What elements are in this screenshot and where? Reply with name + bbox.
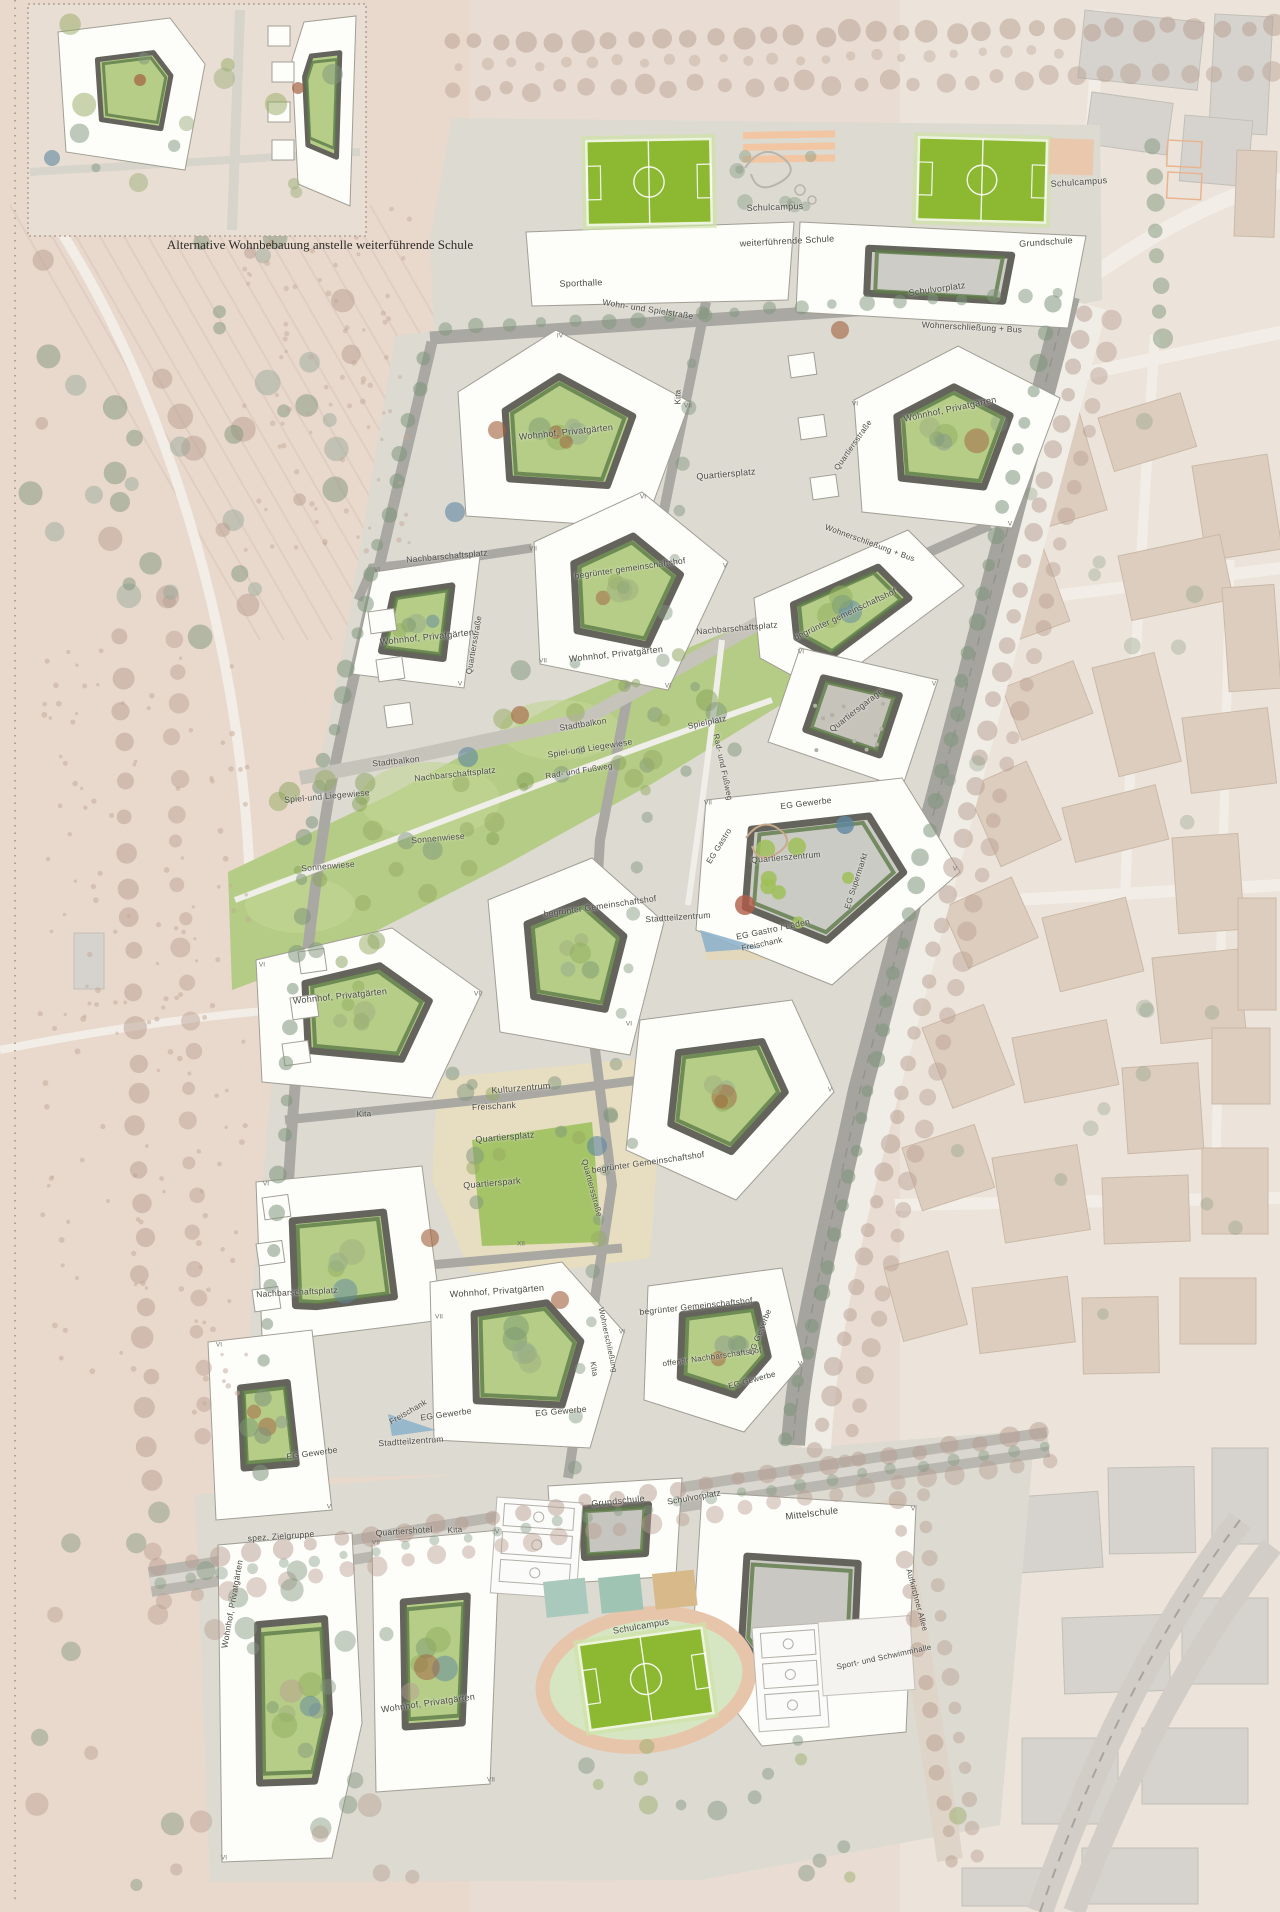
block-sw-1 <box>256 1166 442 1338</box>
building-sporthalle <box>526 222 794 306</box>
block-gewerbe-sw <box>208 1330 332 1520</box>
inset-caption: Alternative Wohnbebauung anstelle weiter… <box>167 237 473 253</box>
sports-field <box>573 1622 719 1736</box>
basketball-courts <box>752 1623 829 1732</box>
block-quartiershotel <box>372 1530 500 1792</box>
inset-variant-plan <box>28 4 366 236</box>
masterplan-canvas: Schulcampusweiterführende SchuleSchulcam… <box>0 0 1280 1912</box>
sports-field <box>912 132 1052 228</box>
masterplan-svg <box>0 0 1280 1912</box>
building-weiterfuehrende-schule <box>796 222 1086 328</box>
sports-field <box>581 134 717 230</box>
